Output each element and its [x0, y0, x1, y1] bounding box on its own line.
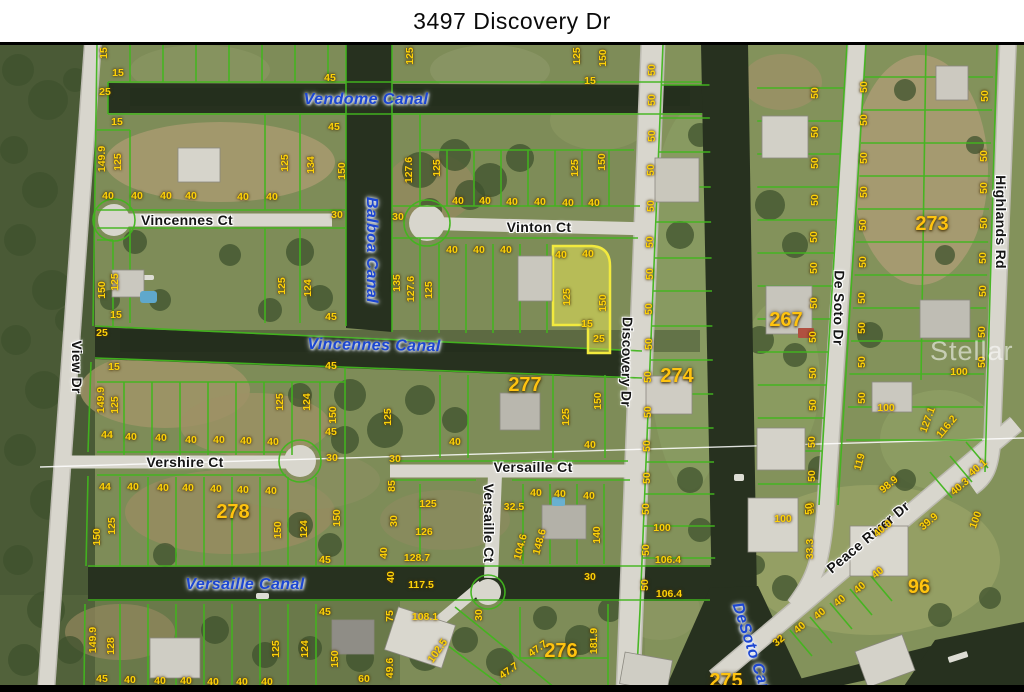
map-top-border [0, 42, 1024, 45]
parcel-map-image: Vincennes CtVinton CtVershire CtVersaill… [0, 0, 1024, 692]
stellar-mls-watermark: Stellar MLS [930, 336, 1024, 367]
title-bar: 3497 Discovery Dr [0, 0, 1024, 42]
listing-map-screenshot: 3497 Discovery Dr [0, 0, 1024, 692]
map-bottom-border [0, 685, 1024, 692]
aerial-map-graphic [0, 0, 1024, 692]
page-title: 3497 Discovery Dr [413, 8, 611, 35]
